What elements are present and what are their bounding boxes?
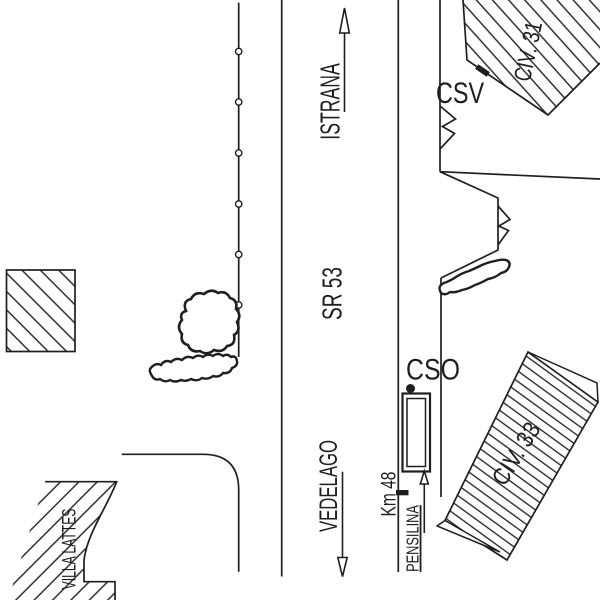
post-marker [236,48,242,54]
post-marker [236,201,242,207]
road-plan-drawing: ISTRANA SR 53 VEDELAGO Km 48 PENSILINA V… [0,0,600,600]
arrow-south-head-icon [338,558,347,577]
side-road-kerb [122,454,239,571]
direction-label-istrana: ISTRANA [314,63,345,140]
building-northwest [7,270,76,352]
direction-label-vedelago: VEDELAGO [315,440,343,532]
arrow-north-head-icon [340,8,350,33]
cso-label: CSO [406,352,460,386]
edge-zigzag-mark-upper [440,106,456,149]
post-marker [236,251,242,257]
km-marker-label: Km 48 [376,472,400,517]
edge-zigzag-mark-lower [498,206,510,245]
buildings [7,0,600,600]
road-plan-sheet: ISTRANA SR 53 VEDELAGO Km 48 PENSILINA V… [0,0,600,600]
villa-lattes-label: VILLA LATTES [60,509,80,590]
driveway-flare-line [440,172,600,179]
hedge-icon-east [440,260,510,295]
tree-icon [179,291,239,354]
post-marker [236,99,242,105]
pensilina-label: PENSILINA [404,505,424,572]
csv-label: CSV [436,76,484,109]
hedge-icon-west [150,354,237,382]
road-label-sr53: SR 53 [317,267,349,320]
post-marker [236,150,242,156]
pensilina-arrow-head-icon [420,471,428,484]
